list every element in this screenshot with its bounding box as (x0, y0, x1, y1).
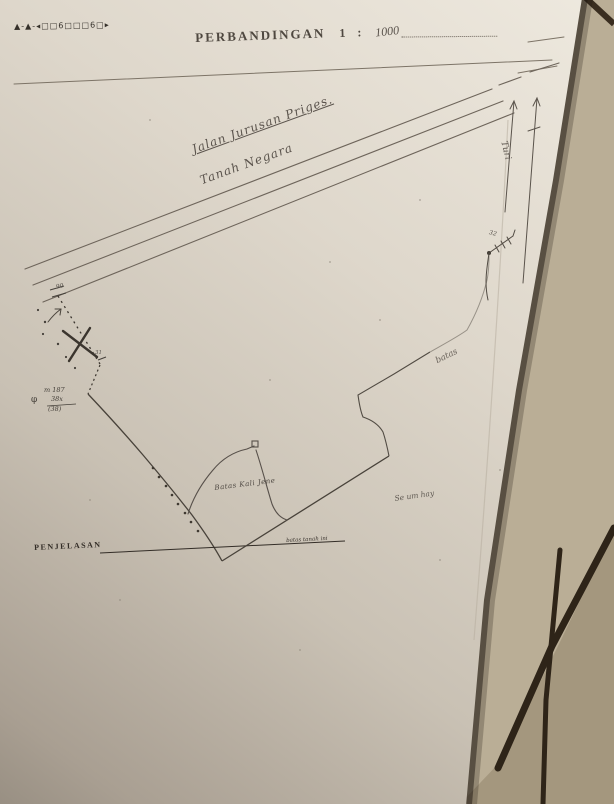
scene-drawing (0, 0, 614, 804)
scale-colon: : (357, 25, 362, 40)
phi-symbol: φ (31, 395, 37, 405)
monument-label: m 187 (44, 386, 65, 394)
fraction-denominator: (38) (48, 405, 61, 413)
scale-number: 1 (339, 26, 346, 41)
scale-value-handwritten: 1000 (375, 23, 400, 40)
photo-of-survey-document: ▲-▲-◂□□6□□□6□▸ PERBANDINGAN 1 : 1000 Jal… (0, 0, 614, 804)
point-number-label: 32 (488, 229, 497, 238)
scan-corner-marks: ▲-▲-◂□□6□□□6□▸ (14, 20, 110, 31)
corner-number-label: 31 (95, 350, 102, 356)
fraction-numerator: 38x (51, 395, 63, 403)
dotted-line (401, 26, 497, 38)
